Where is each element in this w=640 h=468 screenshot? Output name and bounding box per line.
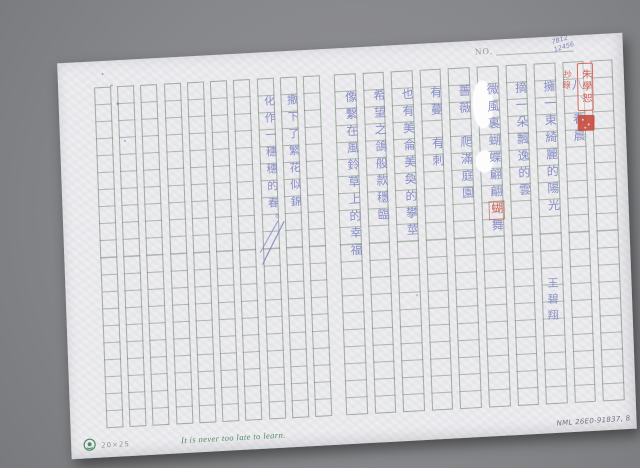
- poem-column-corrected: 微風裏蝴蝶翩翩蝴舞: [476, 83, 504, 237]
- poem-column: 撒下了繁花似錦: [279, 93, 301, 213]
- poem-column: 有蔓 有刺: [419, 86, 444, 172]
- ink-speck: [124, 140, 126, 142]
- red-ink-note: 抄錄: [559, 70, 573, 92]
- red-seal-icon: [578, 115, 595, 131]
- red-corrected-character: 蝴: [489, 201, 504, 219]
- catalog-code: NML 26E0-91837, 8: [556, 414, 630, 427]
- name-stamp: 朱學恕: [577, 63, 594, 112]
- ink-speck: [416, 294, 418, 296]
- publisher-emblem-icon: [83, 438, 96, 452]
- pen-slash-mark: [257, 219, 289, 267]
- grid-column: [591, 59, 625, 401]
- author-signature: 王碧翔: [540, 277, 560, 326]
- no-label: NO.: [475, 46, 494, 57]
- ink-speck: [117, 102, 119, 105]
- scanner-background: NO. 八、春晨 擁一束綺麗的陽光 摘一朵飄逸的雲 微風裏蝴蝶翩翩蝴舞 薔薇 爬…: [0, 0, 640, 468]
- poem-column: 薔薇 爬滿庭園: [448, 84, 474, 204]
- poem-column: 也有美侖美奐的攀莖: [391, 87, 419, 241]
- poem-column: 摘一朵飄逸的雲: [504, 81, 530, 201]
- motto-text: It is never too late to learn.: [181, 430, 286, 446]
- poem-column: 擁一束綺麗的陽光: [533, 80, 560, 217]
- poem-column: 化作一穗穗的春。: [256, 95, 279, 232]
- grid-spec-label: 20×25: [101, 440, 130, 450]
- manuscript-paper: NO. 八、春晨 擁一束綺麗的陽光 摘一朵飄逸的雲 微風裏蝴蝶翩翩蝴舞 薔薇 爬…: [57, 33, 637, 459]
- poem-column: 希望之鴿般款穩臨: [363, 89, 390, 226]
- ink-speck: [102, 73, 104, 75]
- poem-text-segment: 舞: [490, 218, 505, 236]
